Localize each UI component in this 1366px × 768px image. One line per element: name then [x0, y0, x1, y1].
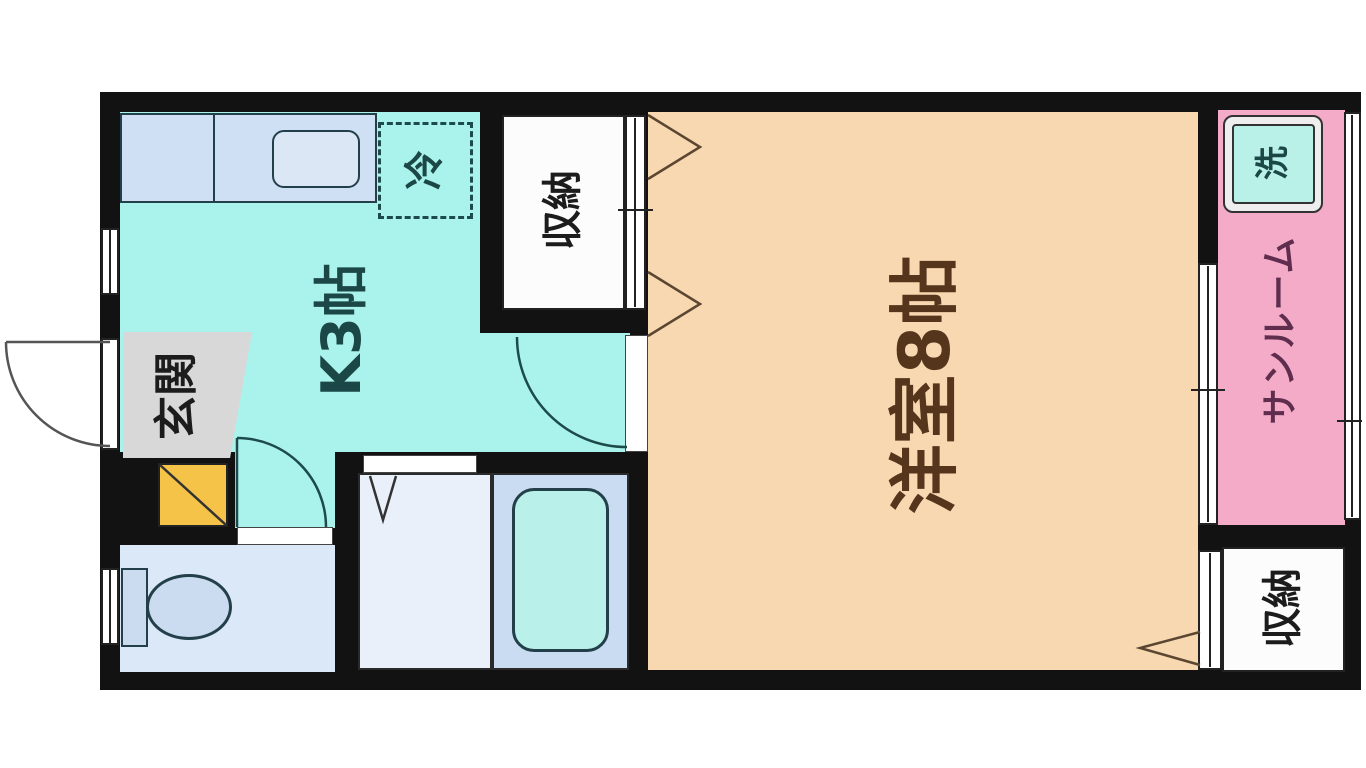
- toilet-tank: [121, 568, 148, 647]
- bathtub: [512, 488, 609, 652]
- front-door-leaf: [101, 338, 119, 450]
- washing-machine: [1232, 124, 1315, 204]
- floorplan-canvas: K3帖 冷 収納 玄関 洋室8帖 サンルーム 洗 収納: [0, 0, 1366, 768]
- front-door-swing: [6, 342, 110, 446]
- closet-bottom: [1222, 547, 1345, 672]
- room-entrance: [123, 332, 252, 458]
- window-sunroom-inner: [1198, 263, 1218, 525]
- closet-bottom-door: [1198, 550, 1222, 670]
- shoe-cabinet: [158, 463, 228, 527]
- window-kitchen-left: [101, 228, 119, 295]
- toilet-door-gap: [237, 527, 333, 545]
- counter-divider: [213, 115, 215, 201]
- window-right-outer: [1344, 112, 1361, 520]
- window-toilet-left: [101, 568, 119, 645]
- kitchen-living-door-gap: [625, 335, 648, 452]
- room-kitchen-lower: [235, 452, 335, 528]
- kitchen-sink: [272, 130, 360, 188]
- room-kitchen-east: [480, 333, 630, 452]
- room-living: [648, 112, 1198, 670]
- closet-top-door: [625, 115, 646, 310]
- toilet-bowl: [146, 574, 232, 640]
- closet-top: [502, 115, 625, 310]
- room-washroom: [358, 473, 492, 670]
- refrigerator-space: [378, 122, 473, 219]
- washroom-door-gap: [363, 455, 477, 473]
